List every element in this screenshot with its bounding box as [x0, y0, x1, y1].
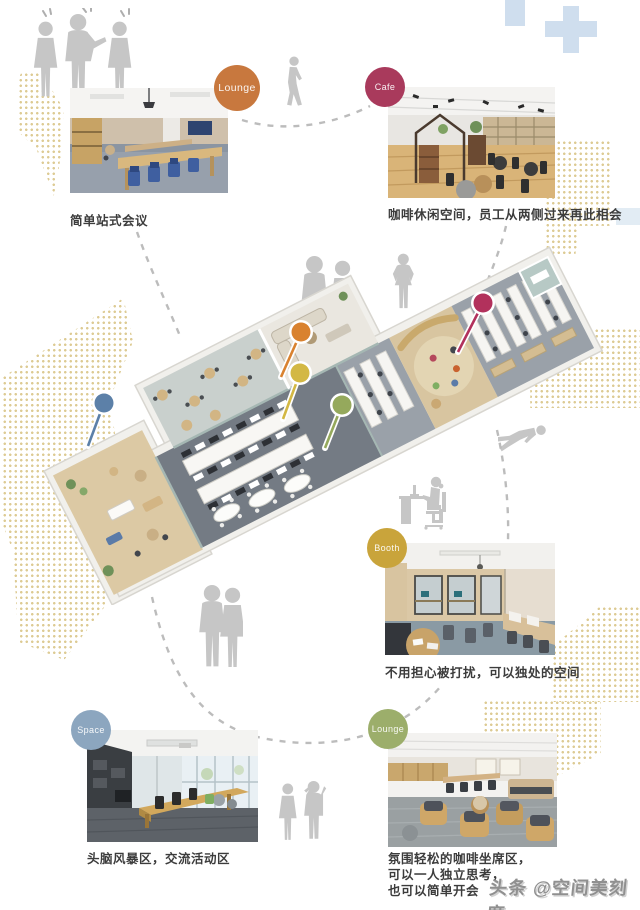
infographic-canvas: Lounge 简单站式会议: [0, 0, 640, 910]
caption-space: 头脑风暴区，交流活动区: [87, 848, 230, 867]
badge-space: Space: [71, 710, 111, 750]
map-pin-blue: [74, 389, 128, 459]
badge-lounge-top-label: Lounge: [218, 82, 255, 94]
photo-booth: [385, 543, 555, 655]
badge-booth-label: Booth: [374, 543, 400, 553]
watermark: 头条 @空间美刻度: [485, 874, 640, 910]
badge-lounge-top: Lounge: [214, 65, 260, 111]
badge-booth: Booth: [367, 528, 407, 568]
map-pin-red: [453, 289, 507, 359]
map-pin-green: [312, 391, 366, 461]
badge-space-label: Space: [77, 725, 105, 735]
badge-lounge-bottom: Lounge: [368, 709, 408, 749]
photo-cafe: [388, 87, 555, 198]
photo-space: [87, 730, 258, 842]
caption-cafe: 咖啡休闲空间，员工从两侧过来再此相会: [388, 204, 622, 223]
caption-lounge-top: 简单站式会议: [70, 210, 148, 229]
badge-cafe: Cafe: [365, 67, 405, 107]
badge-lounge-bottom-label: Lounge: [372, 724, 404, 734]
badge-cafe-label: Cafe: [375, 82, 396, 92]
photo-lounge-bottom: [388, 733, 557, 847]
photo-lounge-top: [70, 88, 228, 193]
caption-booth: 不用担心被打扰，可以独处的空间: [385, 662, 580, 681]
